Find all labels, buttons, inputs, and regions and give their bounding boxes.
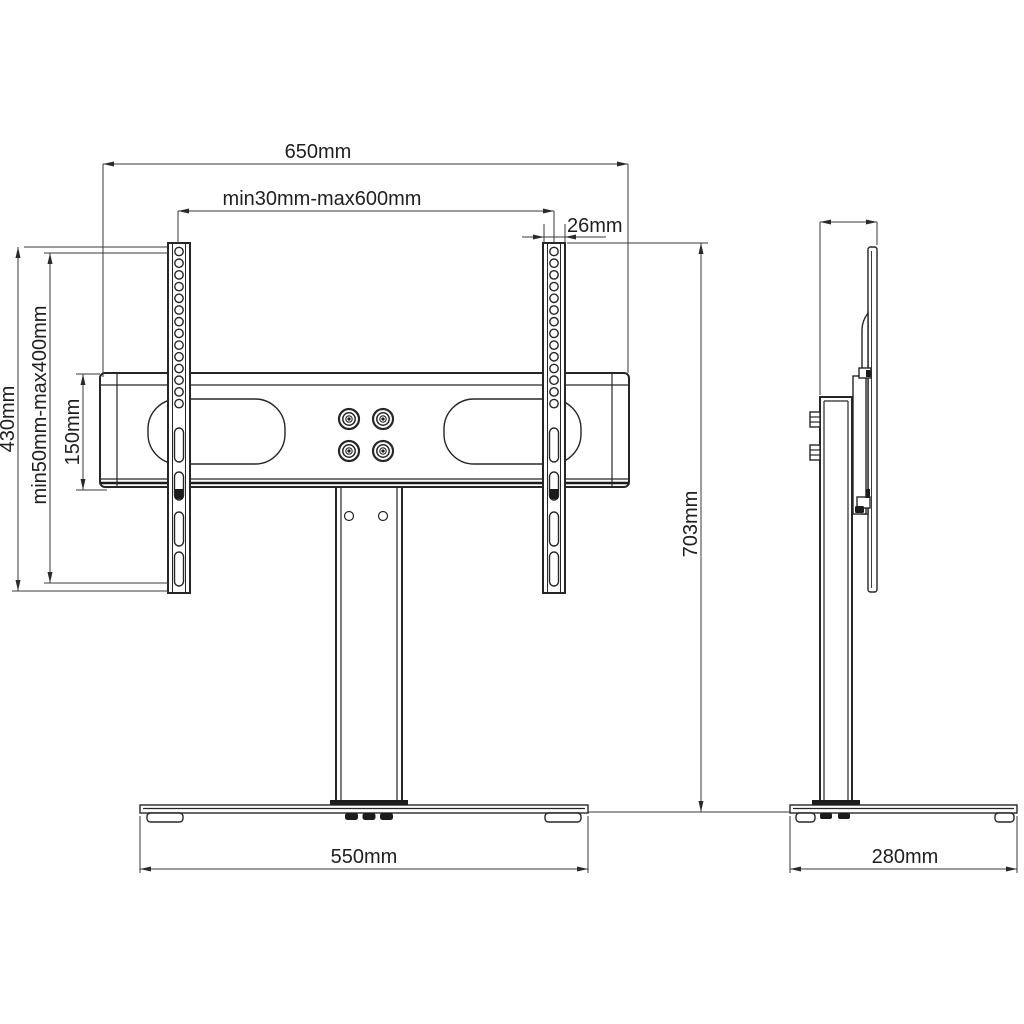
column-foot-side xyxy=(820,813,832,819)
technical-drawing-page: 650mm min30mm-max600mm 26mm 430mm xyxy=(0,0,1024,1024)
dim-base-width: 550mm xyxy=(140,816,588,873)
base-foot-side xyxy=(995,813,1014,822)
right-mounting-rail xyxy=(543,243,565,593)
dim-rail-span-label: min30mm-max600mm xyxy=(223,188,422,210)
base-foot-side xyxy=(796,813,815,822)
adjustment-bolt xyxy=(810,445,820,460)
column-foot xyxy=(363,813,376,820)
knob xyxy=(373,441,393,461)
base-front xyxy=(140,800,588,822)
dim-rail-width: 26mm xyxy=(522,215,623,243)
front-view xyxy=(100,243,629,822)
dim-total-height-label: 703mm xyxy=(680,491,702,558)
side-view xyxy=(790,247,1017,822)
dim-rail-span: min30mm-max600mm xyxy=(178,188,554,243)
knob xyxy=(339,441,359,461)
column-foot-side xyxy=(838,813,850,819)
dim-base-depth-label: 280mm xyxy=(872,846,939,868)
dim-total-width-label: 650mm xyxy=(285,141,352,163)
tv-stand-dimension-drawing: 650mm min30mm-max600mm 26mm 430mm xyxy=(0,0,1024,1024)
column-side xyxy=(810,397,852,805)
base-foot-right xyxy=(545,813,581,822)
dim-hole-range-label: min50mm-max400mm xyxy=(29,306,51,505)
dim-total-height: 703mm xyxy=(567,243,708,812)
base-foot-left xyxy=(147,813,183,822)
left-mounting-rail xyxy=(168,243,190,593)
knob xyxy=(373,409,393,429)
dim-base-width-label: 550mm xyxy=(331,846,398,868)
dim-base-depth: 280mm xyxy=(790,816,1017,873)
rail-slot-spacer xyxy=(550,489,558,499)
column-foot xyxy=(345,813,358,820)
dim-rail-width-label: 26mm xyxy=(567,215,623,237)
adjustment-bolt xyxy=(810,412,820,427)
column-foot xyxy=(380,813,393,820)
dim-rail-height-label: 430mm xyxy=(0,386,19,453)
dim-bar-height-label: 150mm xyxy=(62,399,84,466)
knob xyxy=(339,409,359,429)
base-side xyxy=(790,800,1017,822)
rail-slot-spacer xyxy=(175,489,183,499)
